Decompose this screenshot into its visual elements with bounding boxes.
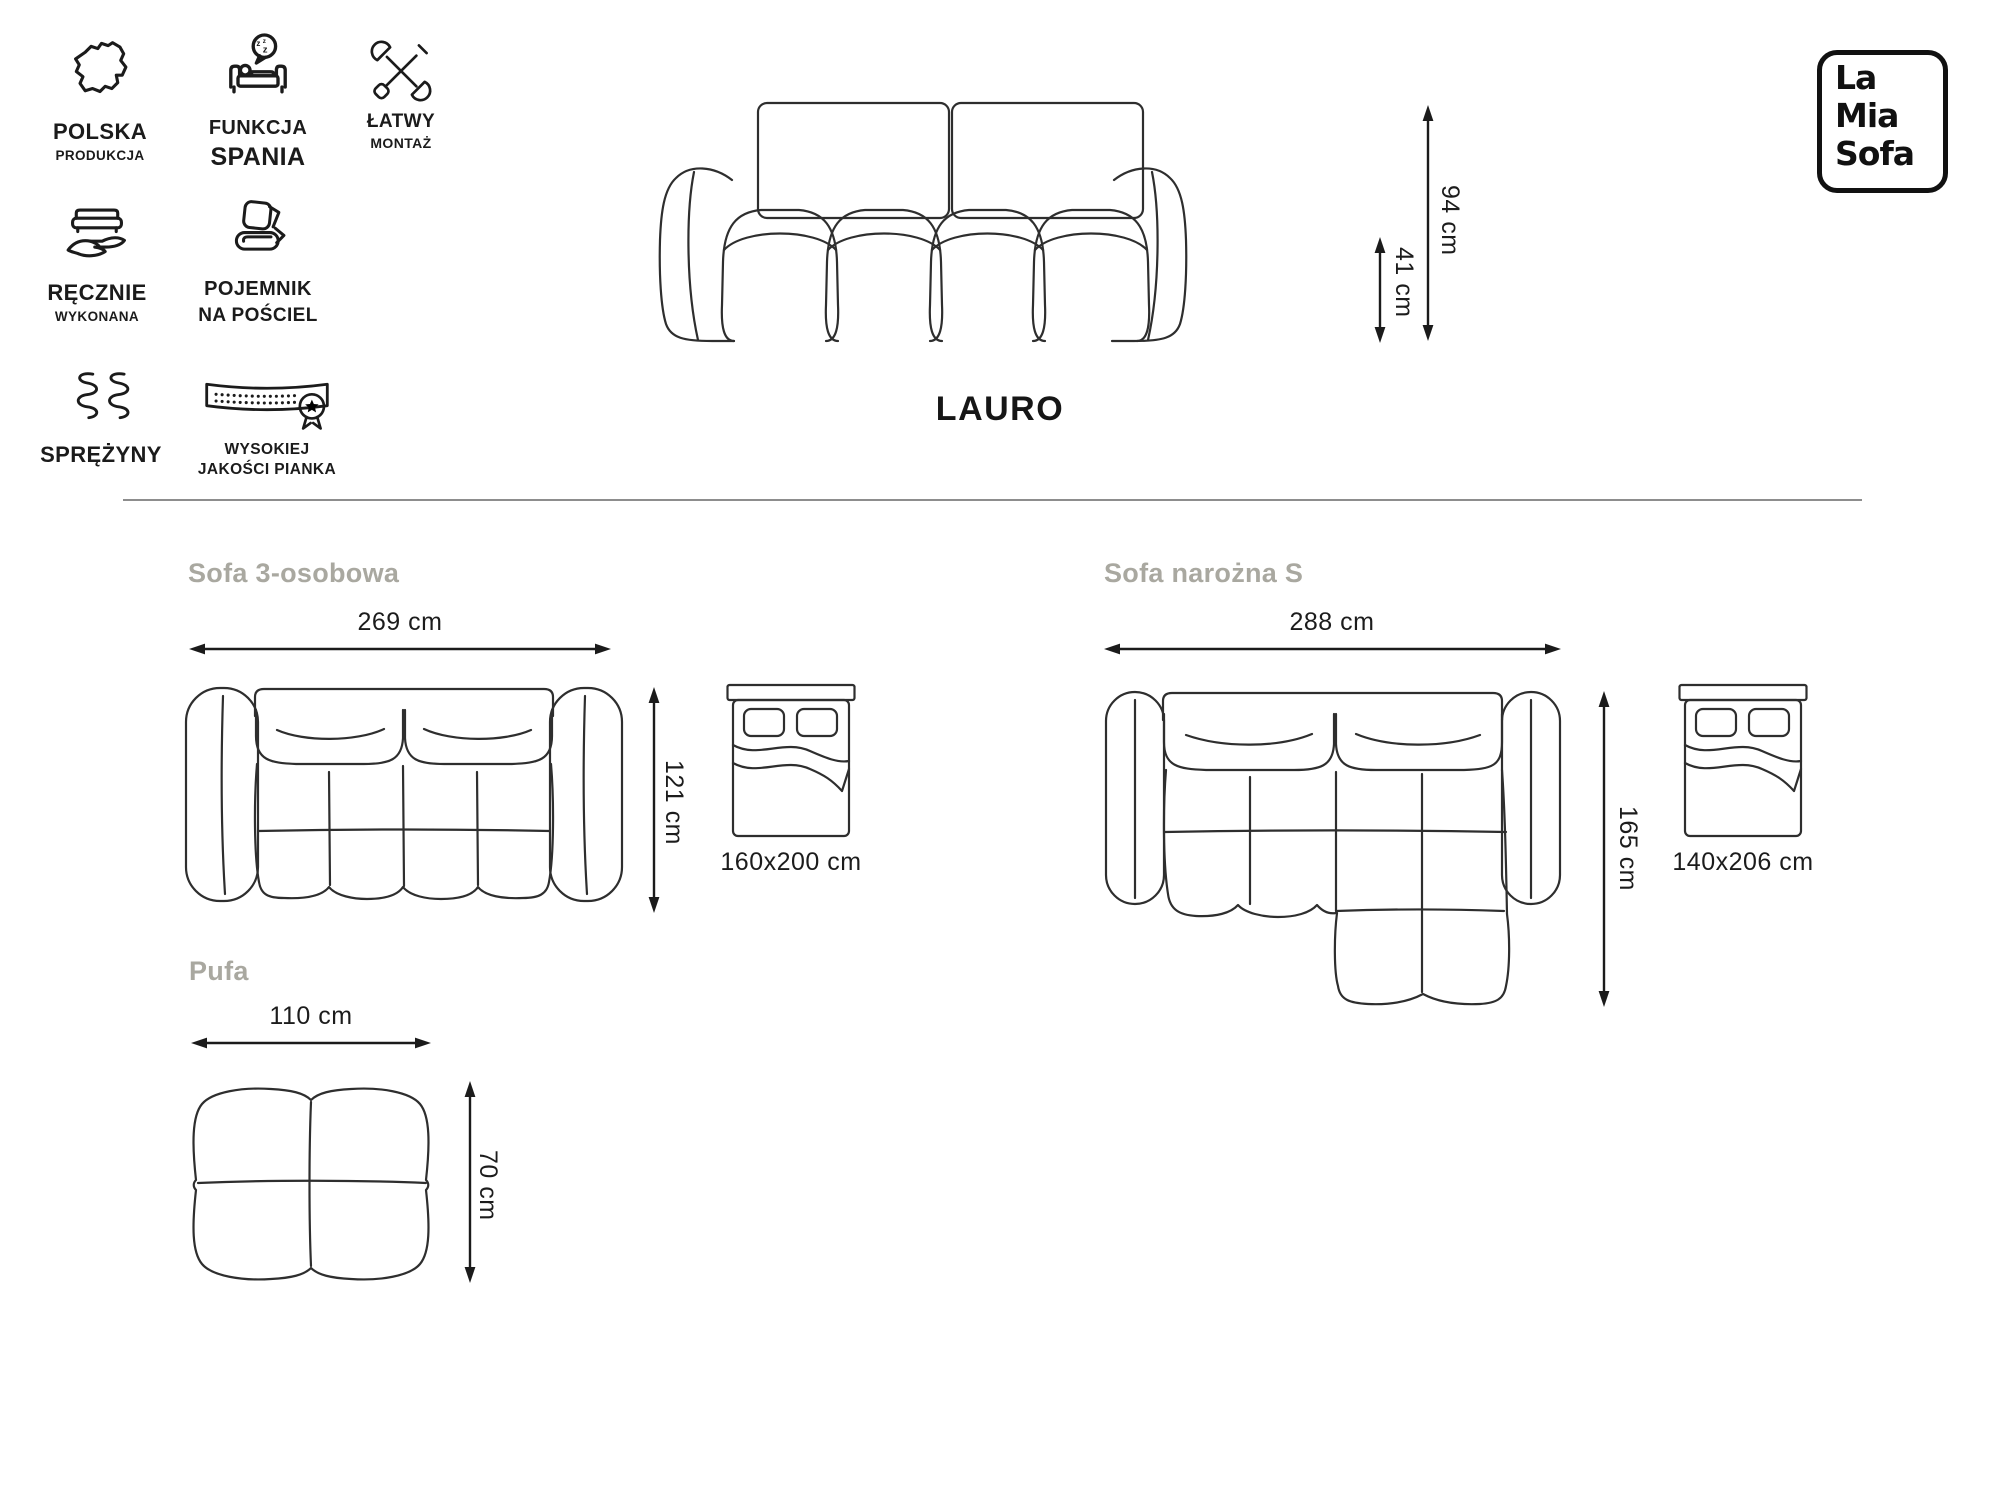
feature-sublabel: NA POŚCIEL [198,305,317,327]
feature-sprezyny: SPRĘŻYNY [40,366,162,468]
sofa-front-view-drawing [628,90,1218,346]
feature-sublabel: MONTAŻ [370,135,431,152]
product-spec-sheet: POLSKA PRODUKCJA z z z FUNKCJA SPANIA [0,0,2000,1500]
variant-title-sofa3: Sofa 3-osobowa [188,558,399,589]
feature-label: SPRĘŻYNY [40,442,162,468]
pufa-depth-label: 70 cm [473,1150,502,1221]
svg-text:z: z [256,39,260,48]
feature-latwy-montaz: ŁATWY MONTAŻ [344,38,458,152]
narozna-bed-size-label: 140x206 cm [1658,848,1828,877]
pufa-top-view-drawing [186,1080,438,1288]
feature-pojemnik-na-posciel: POJEMNIK NA POŚCIEL [190,196,326,327]
brand-logo: La Mia Sofa [1817,50,1948,193]
tools-icon [369,38,433,104]
brand-logo-line: Mia [1835,97,1943,135]
seat-height-dimension-arrow [1372,236,1388,344]
narozna-width-arrow [1103,641,1562,657]
pufa-width-label: 110 cm [241,1002,381,1031]
feature-label: POJEMNIK [204,278,312,302]
foam-quality-icon [200,372,334,434]
feature-label: FUNKCJA [209,117,307,141]
sofa3-bed-size-label: 160x200 cm [706,848,876,877]
feature-label: ŁATWY [367,111,435,133]
feature-label: WYSOKIEJ [224,441,309,459]
bedding-container-icon [222,196,294,272]
feature-sublabel: PRODUKCJA [55,148,144,164]
feature-label: RĘCZNIE [47,280,146,306]
feature-wysokiej-jakosci-pianka: WYSOKIEJ JAKOŚCI PIANKA [186,372,348,480]
narozna-depth-arrow [1596,690,1612,1008]
narozna-top-view-drawing [1098,682,1568,1006]
sofa3-width-arrow [188,641,612,657]
feature-sublabel: WYKONANA [55,309,139,325]
height-dimension-arrow [1420,104,1436,342]
narozna-depth-label: 165 cm [1613,806,1642,891]
svg-text:z: z [263,45,268,56]
feature-funkcja-spania: z z z FUNKCJA SPANIA [190,30,326,172]
seat-height-dimension-label: 41 cm [1389,247,1418,318]
variant-title-narozna: Sofa narożna S [1104,558,1303,589]
poland-map-icon [63,34,137,112]
variant-title-pufa: Pufa [189,956,249,987]
brand-logo-line: Sofa [1835,135,1943,173]
feature-polska-produkcja: POLSKA PRODUKCJA [36,34,164,164]
divider-line [123,499,1862,501]
brand-logo-line: La [1835,59,1943,97]
handmade-icon [60,198,134,274]
feature-label: POLSKA [53,119,147,145]
pufa-width-arrow [190,1035,432,1051]
feature-sublabel: SPANIA [210,143,305,173]
feature-recznie-wykonana: RĘCZNIE WYKONANA [32,198,162,325]
feature-sublabel: JAKOŚCI PIANKA [198,461,336,479]
sofa3-top-view-drawing [184,680,624,915]
sofa3-width-label: 269 cm [330,608,470,637]
narozna-bed-size-icon [1678,683,1808,839]
sleep-function-icon: z z z [218,30,298,112]
springs-icon [66,366,136,434]
product-name: LAURO [850,390,1150,429]
sofa3-bed-size-icon [726,683,856,839]
height-dimension-label: 94 cm [1435,185,1464,256]
sofa3-depth-label: 121 cm [659,760,688,845]
narozna-width-label: 288 cm [1262,608,1402,637]
